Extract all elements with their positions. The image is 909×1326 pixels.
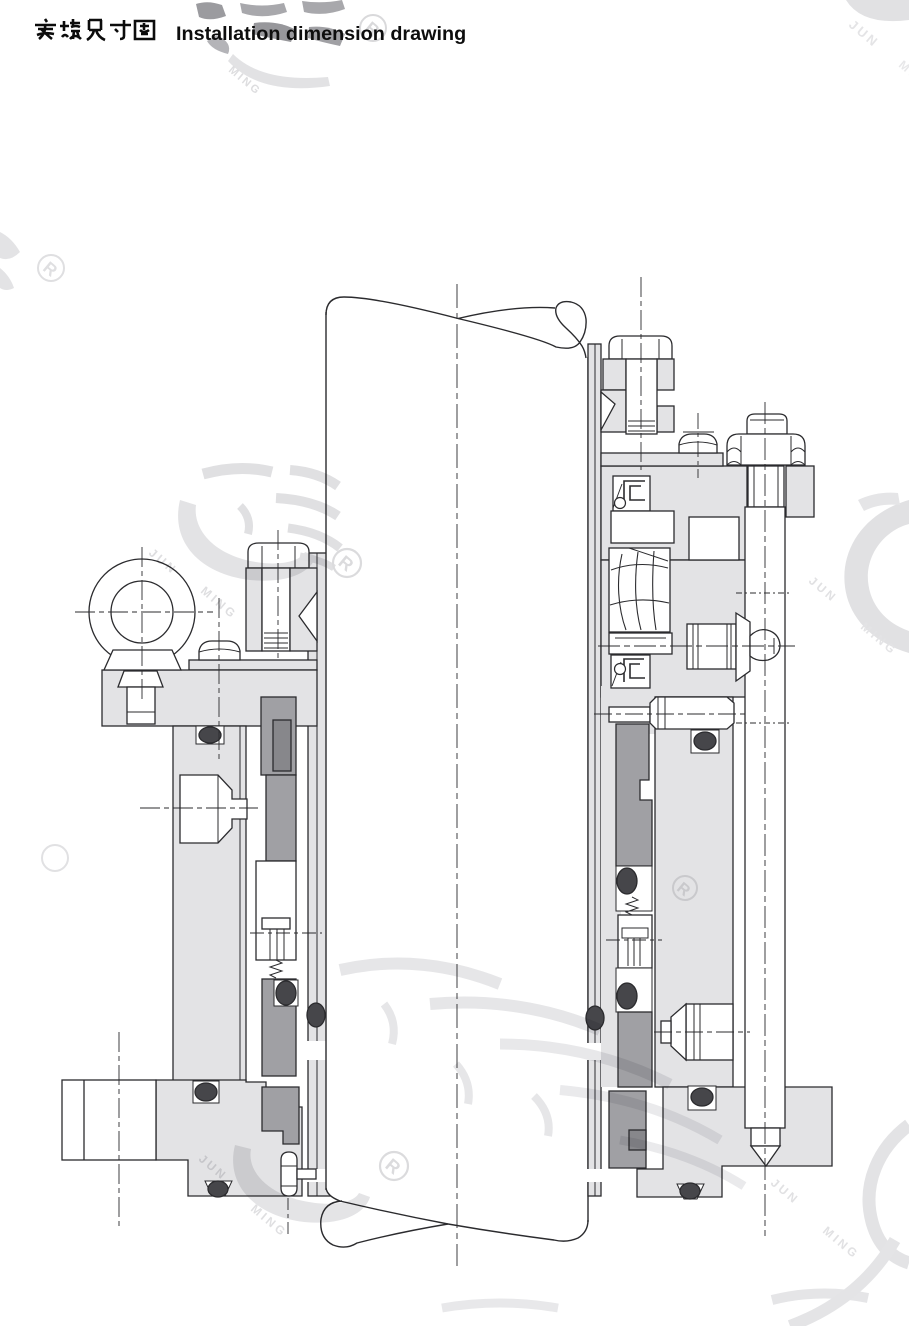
svg-text:Installation dimension drawing: Installation dimension drawing	[176, 23, 466, 45]
